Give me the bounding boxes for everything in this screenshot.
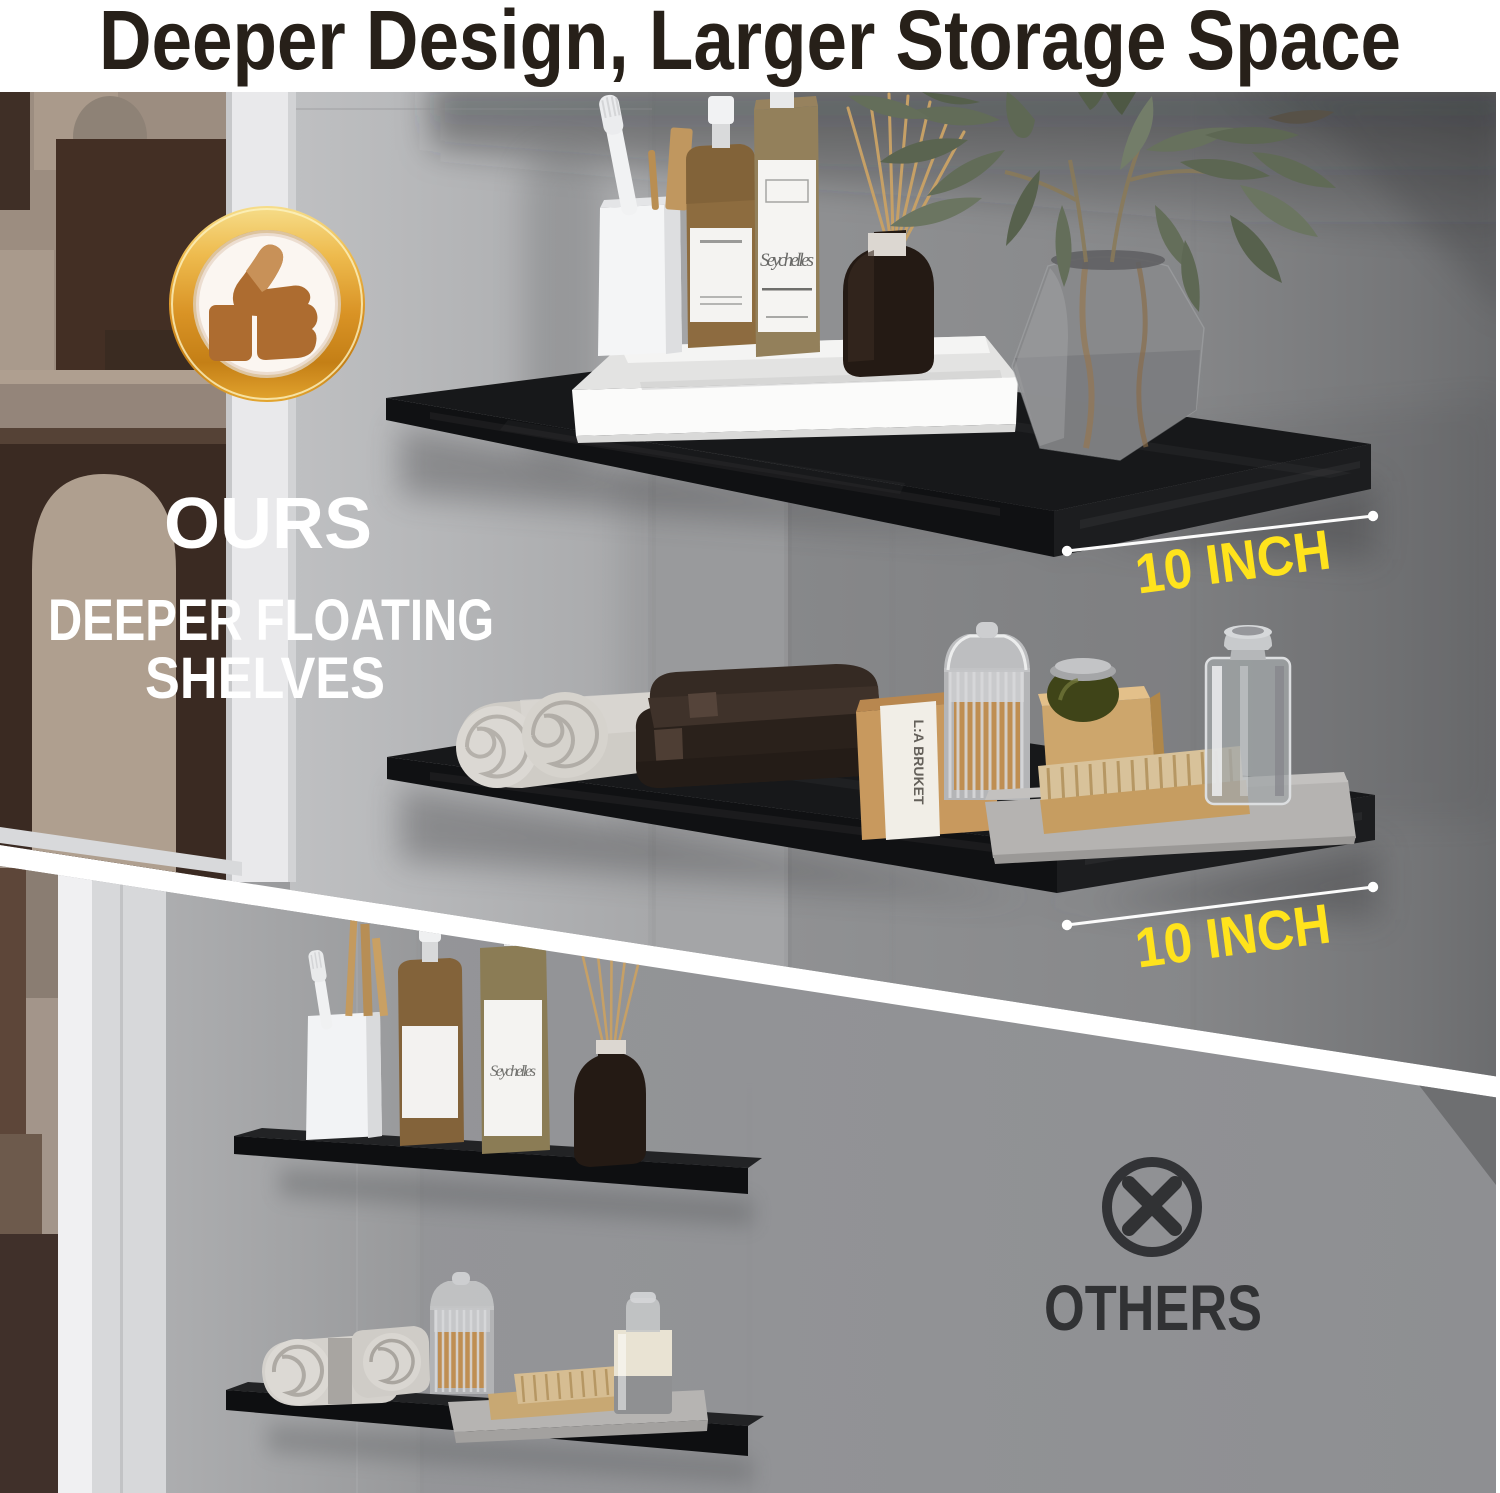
- svg-text:SHELVES: SHELVES: [145, 646, 385, 711]
- svg-text:DEEPER FLOATING: DEEPER FLOATING: [48, 588, 494, 653]
- svg-text:OURS: OURS: [164, 484, 372, 564]
- svg-text:Deeper Design, Larger Storage: Deeper Design, Larger Storage Space: [99, 0, 1401, 87]
- svg-text:OTHERS: OTHERS: [1044, 1272, 1262, 1344]
- svg-text:Seychelles: Seychelles: [490, 1063, 536, 1080]
- svg-text:Seychelles: Seychelles: [760, 250, 814, 271]
- svg-text:L:A BRUKET: L:A BRUKET: [911, 719, 927, 804]
